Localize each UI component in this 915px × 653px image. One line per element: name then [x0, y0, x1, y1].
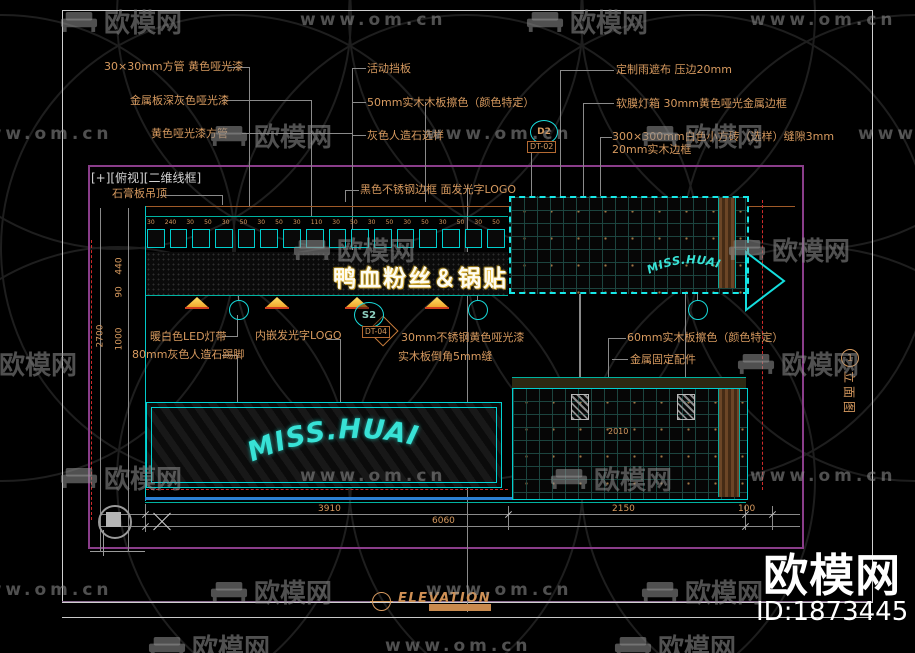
floor-accent-line [145, 502, 746, 503]
panel-dim-number: 50 [386, 219, 394, 227]
leader-line [772, 506, 773, 530]
awning-lamp-shade [426, 297, 448, 307]
annotation-label: 内嵌发光字LOGO [255, 330, 342, 341]
panel-dim-number: 50 [457, 219, 465, 227]
round-lamp-icon [688, 300, 708, 320]
panel-dim-number: 50 [240, 219, 248, 227]
fascia-panel-cell [238, 229, 256, 248]
pendant-lamp-box [571, 394, 589, 420]
fascia-top-line [145, 216, 508, 217]
panel-dim-number: 30 [222, 219, 230, 227]
awning-lamp-icon [425, 297, 449, 311]
panel-dim-number: 110 [311, 219, 322, 227]
dimension-value: 6060 [432, 517, 455, 526]
fascia-panel-cell [419, 229, 437, 248]
dimension-value: 2010 [608, 428, 628, 436]
leader-line [345, 190, 359, 191]
leader-line [352, 135, 366, 136]
sheet-bottom-line [62, 617, 872, 618]
awning-lamp-base [185, 307, 209, 309]
ucs-axis-x [90, 551, 145, 552]
fascia-panel-cell [215, 229, 233, 248]
leader-line [128, 208, 129, 552]
elevation-title-underline [429, 604, 491, 611]
round-lamp-icon [229, 300, 249, 320]
leader-line [311, 100, 312, 216]
panel-dim-number: 30 [186, 219, 194, 227]
ucs-icon-square [106, 512, 121, 527]
leader-line [560, 70, 561, 196]
fascia-panel-cell [442, 229, 460, 248]
fascia-panel-cells [147, 229, 505, 248]
leader-line [467, 185, 468, 612]
panel-dim-number: 50 [492, 219, 500, 227]
red-dashed-line [146, 489, 508, 490]
elevation-side-label: 立面图 [841, 371, 858, 416]
viewport-visual-style-control[interactable]: [二维线框] [144, 171, 201, 185]
leader-line [608, 338, 626, 339]
detail-callout-s2-ref: DT-04 [362, 326, 390, 338]
awning-lamp-shade [266, 297, 288, 307]
awning-lamp-base [425, 307, 449, 309]
annotation-label: 80mm灰色人造石踢脚 [132, 349, 244, 360]
panel-dim-number: 50 [421, 219, 429, 227]
leader-line [600, 137, 612, 138]
viewport-plus-control[interactable]: [+] [91, 171, 110, 185]
annotation-label: 定制雨遮布 压边20mm [616, 64, 732, 75]
leader-line [583, 103, 614, 104]
cad-elevation-screenshot: [+][俯视][二维线框] 30240305030503050301103050… [0, 0, 915, 653]
elevation-number: 1 [847, 353, 853, 364]
dimension-value-vertical: 90 [116, 286, 125, 297]
annotation-label: 灰色人造石选样 [367, 130, 444, 141]
panel-dim-number: 30 [368, 219, 376, 227]
leader-line [249, 67, 250, 207]
panel-dim-number: 30 [293, 219, 301, 227]
shop-banner-text: 鸭血粉丝＆锅贴 [333, 259, 508, 293]
panel-dim-number: 30 [147, 219, 155, 227]
dimension-value-vertical: 2700 [97, 325, 106, 348]
annotation-label: 黄色哑光漆方管 [151, 128, 228, 139]
annotation-label: 金属固定配件 [630, 354, 696, 365]
viewport-view-control[interactable]: [俯视] [110, 171, 143, 185]
site-brand-block: 欧模网 ID:1873445 [756, 552, 908, 625]
fascia-panel-cell [397, 229, 415, 248]
dimension-value-vertical: 1000 [116, 328, 125, 351]
pendant-lamp-box [677, 394, 695, 420]
neon-sign-small: MISS.HUAI [645, 246, 735, 282]
annotation-label: 实木板倒角5mm缝 [398, 351, 492, 362]
leader-line [145, 504, 146, 532]
awning-lamp-icon [185, 297, 209, 311]
leader-line [100, 514, 800, 515]
annotation-label: 金属板深灰色哑光漆 [130, 95, 229, 106]
fascia-panel-cell [487, 229, 505, 248]
red-dashed-line [91, 240, 92, 520]
annotation-label: 20mm实木边框 [612, 144, 691, 155]
awning-lamp-shade [186, 297, 208, 307]
detail-callout-s2: S2 [354, 302, 384, 328]
elevation-number-bubble: 1 [841, 349, 859, 367]
viewport-controls: [+][俯视][二维线框] [91, 169, 201, 186]
dimension-value: 3910 [318, 505, 341, 514]
leader-line [352, 102, 366, 103]
panel-dim-number: 30 [332, 219, 340, 227]
panel-dim-number: 30 [474, 219, 482, 227]
annotation-label: 50mm实木木板擦色（颜色特定） [367, 97, 534, 108]
fascia-panel-cell [283, 229, 301, 248]
leader-line [612, 359, 628, 360]
leader-line [100, 208, 101, 552]
fascia-panel-cell [306, 229, 324, 248]
leader-line [600, 137, 601, 196]
fascia-panel-cell [351, 229, 369, 248]
leader-line [340, 339, 341, 403]
awning-lamp-icon [265, 297, 289, 311]
neon-sign-main-text: MISS.HUAI [243, 414, 422, 468]
awning-lamp-base [265, 307, 289, 309]
fascia-panel-cell [465, 229, 483, 248]
section-arrow-icon [744, 250, 790, 314]
leader-line [345, 190, 346, 202]
panel-dim-number: 30 [439, 219, 447, 227]
annotation-label: 300×300mm白色小方砖（选样）缝隙3mm [612, 131, 834, 142]
red-dashed-line [762, 200, 763, 490]
wood-grid-panel [512, 388, 748, 500]
annotation-label: 黑色不锈钢边框 面发光字LOGO [360, 184, 516, 195]
model-id: ID:1873445 [756, 599, 908, 625]
neon-sign-main: MISS.HUAI [246, 408, 460, 474]
leader-line [583, 103, 584, 196]
leader-line [352, 68, 366, 69]
fascia-panel-cell [260, 229, 278, 248]
leader-line [100, 526, 800, 527]
fascia-panel-cell [147, 229, 165, 248]
svg-text:MISS.HUAI: MISS.HUAI [645, 252, 723, 276]
annotation-label: 石膏板吊顶 [112, 188, 167, 199]
panel-dim-number: 50 [204, 219, 212, 227]
annotation-label: 60mm实木板擦色（颜色特定） [627, 332, 783, 343]
detail-callout-d2-label: D2 [537, 127, 551, 137]
panel-dim-number: 30 [403, 219, 411, 227]
fascia-panel-cell [374, 229, 392, 248]
leader-line [222, 195, 223, 205]
fascia-panel-cell [192, 229, 210, 248]
fascia-panel-cell [329, 229, 347, 248]
panel-dim-number: 50 [350, 219, 358, 227]
annotation-label: 30mm不锈钢黄色哑光漆 [401, 332, 524, 343]
leader-line [560, 70, 614, 71]
annotation-label: 暖白色LED灯带 [150, 331, 227, 342]
annotation-label: 活动挡板 [367, 63, 411, 74]
leader-line [160, 195, 222, 196]
panel-dim-number: 30 [257, 219, 265, 227]
leader-line [531, 152, 532, 196]
panel-dim-number: 240 [165, 219, 176, 227]
detail-callout-d2-ref: DT-02 [527, 141, 556, 153]
leader-line [222, 100, 312, 101]
detail-callout-s2-label: S2 [362, 310, 376, 321]
leader-line [242, 133, 352, 134]
elevation-symbol-icon [372, 592, 391, 611]
neon-sign-small-text: MISS.HUAI [645, 252, 723, 276]
panel-dim-number: 50 [275, 219, 283, 227]
site-logo-text: 欧模网 [756, 552, 908, 599]
dimension-value: 2150 [612, 505, 635, 514]
round-lamp-icon [468, 300, 488, 320]
annotation-label: 30×30mm方管 黄色哑光漆 [104, 61, 243, 72]
wood-post [718, 389, 740, 497]
dimension-value-vertical: 440 [116, 257, 125, 274]
svg-text:MISS.HUAI: MISS.HUAI [243, 414, 422, 468]
leader-line [508, 506, 509, 530]
fascia-panel-cell [170, 229, 188, 248]
annotation-label: 软膜灯箱 30mm黄色哑光金属边框 [616, 98, 787, 109]
panel-dimension-numbers: 3024030503050305030110305030503050305030… [147, 219, 557, 227]
